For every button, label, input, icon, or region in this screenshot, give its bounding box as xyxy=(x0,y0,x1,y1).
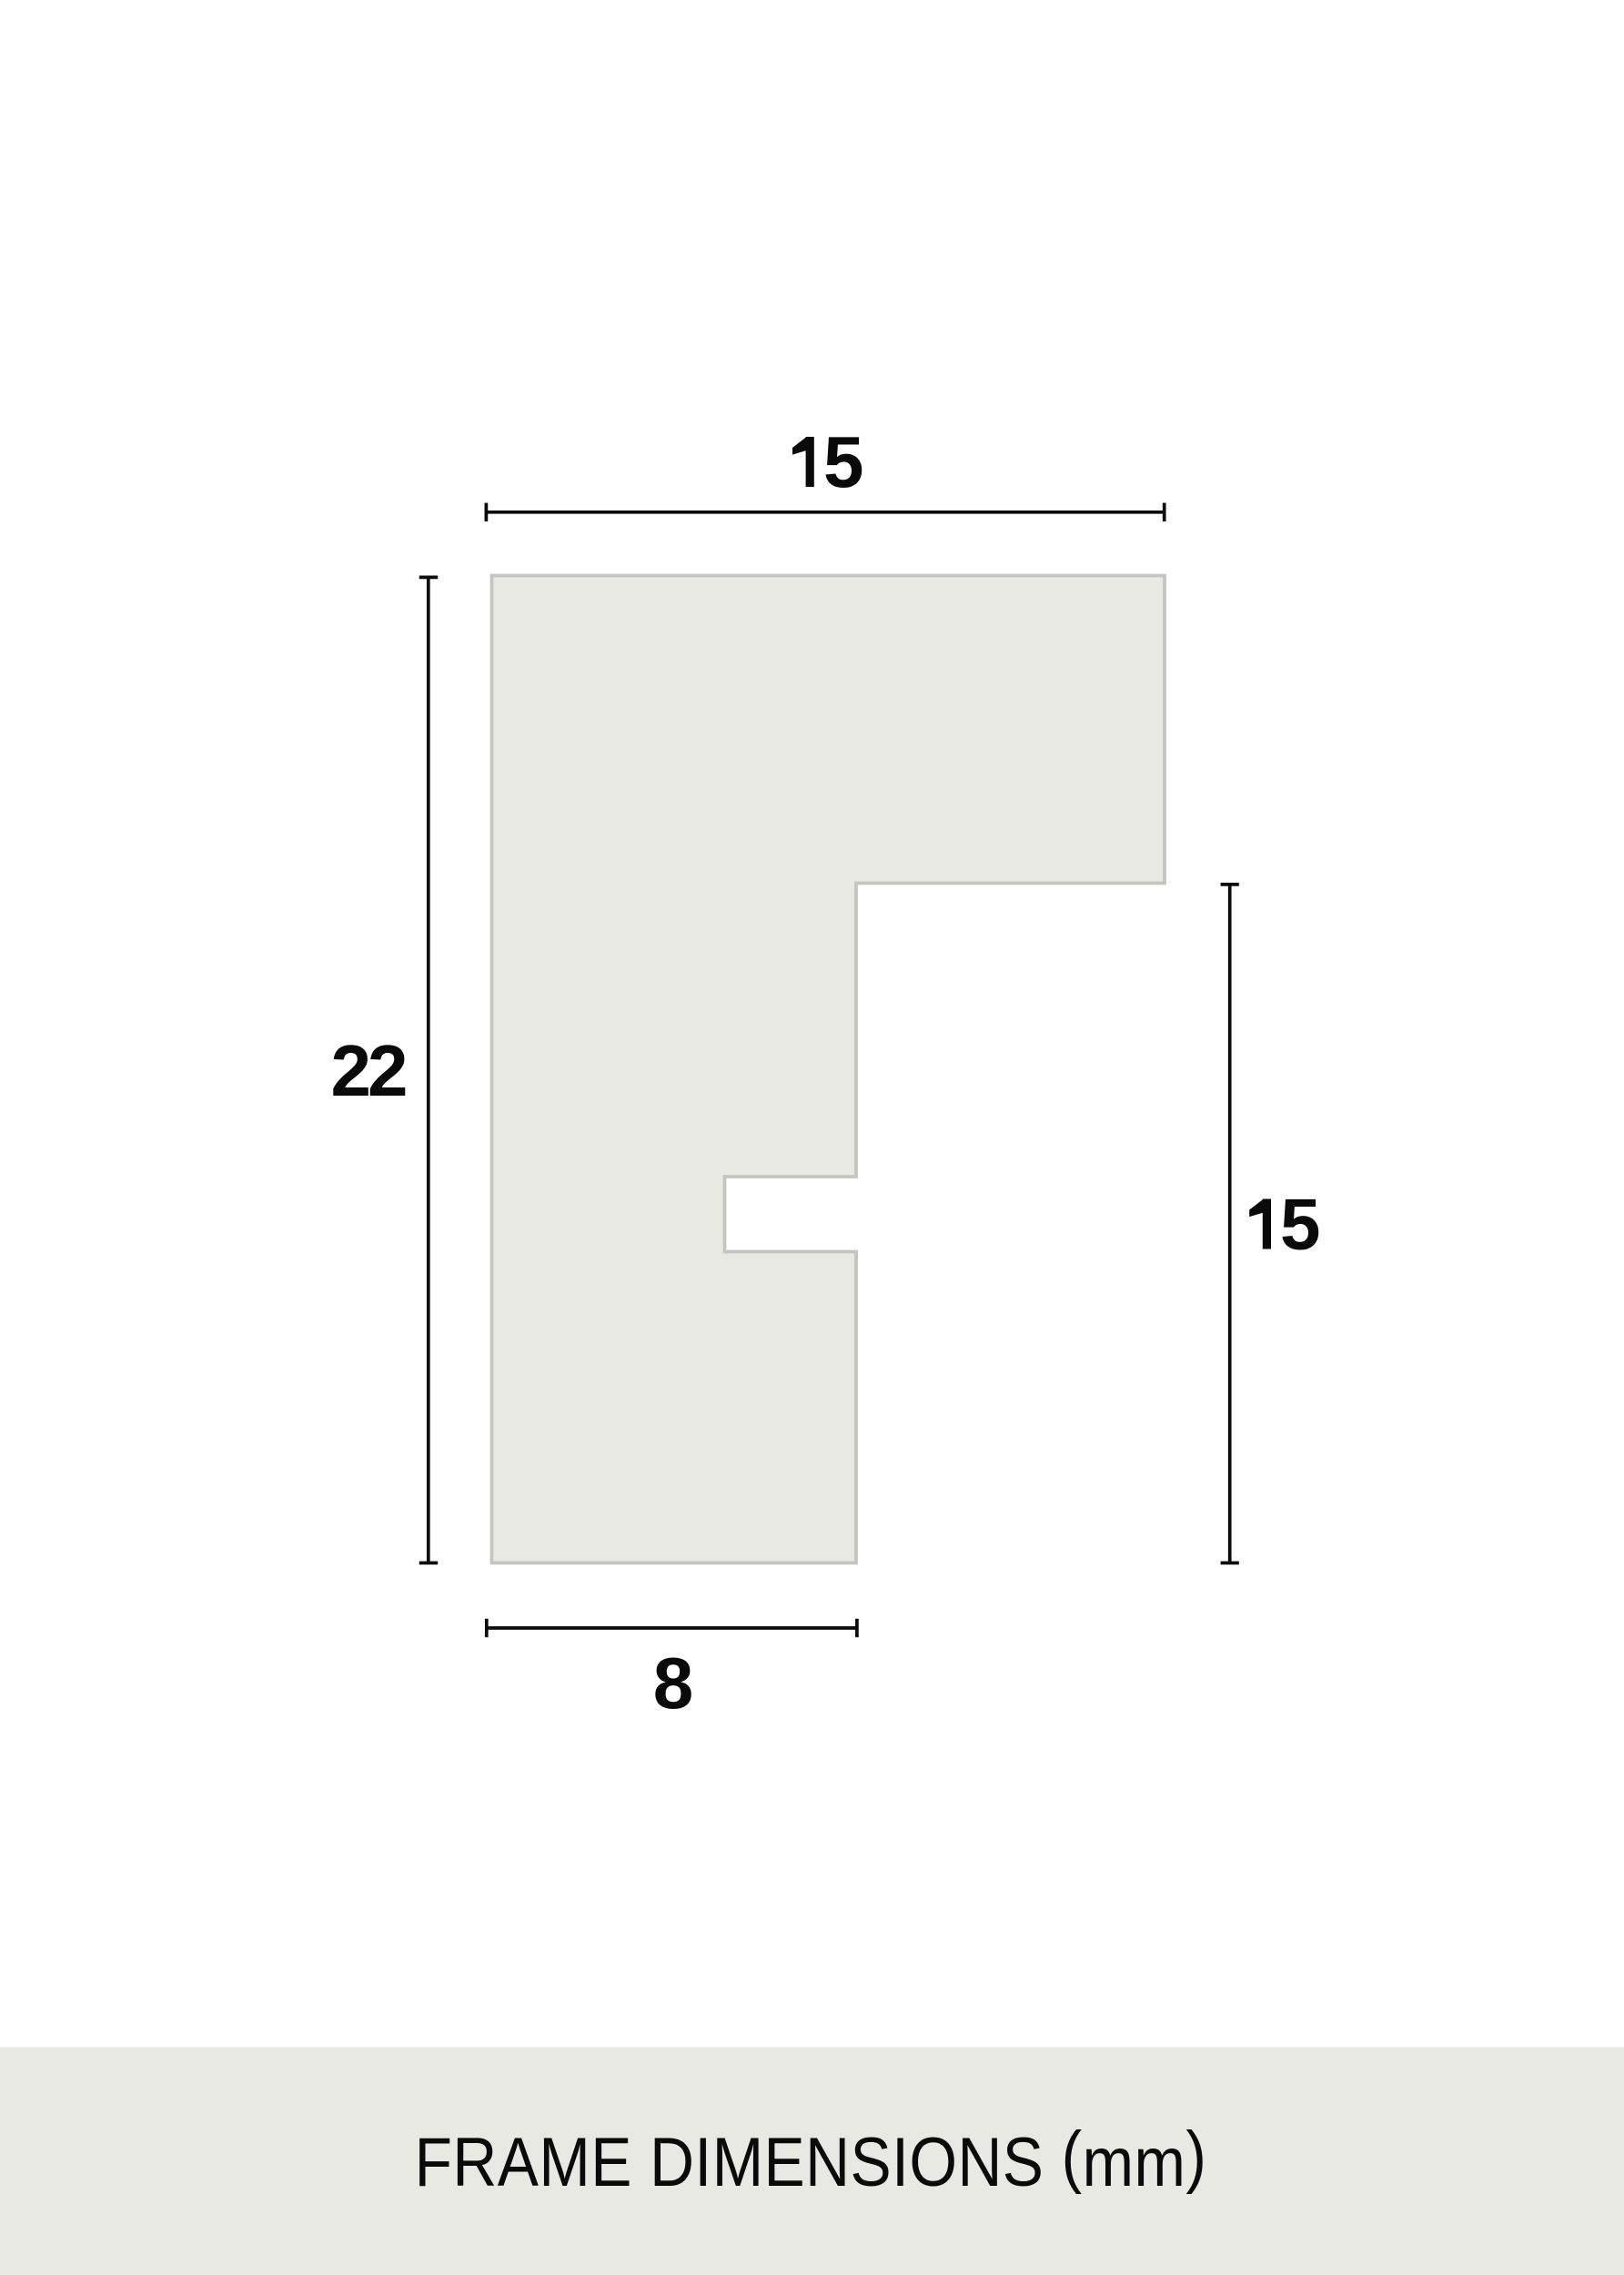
svg-text:FRAME DIMENSIONS (mm): FRAME DIMENSIONS (mm) xyxy=(415,2118,1207,2200)
svg-text:8: 8 xyxy=(653,1643,692,1724)
svg-text:5: 5 xyxy=(823,421,864,502)
svg-text:5: 5 xyxy=(1280,1184,1321,1265)
svg-text:22: 22 xyxy=(331,1030,406,1111)
